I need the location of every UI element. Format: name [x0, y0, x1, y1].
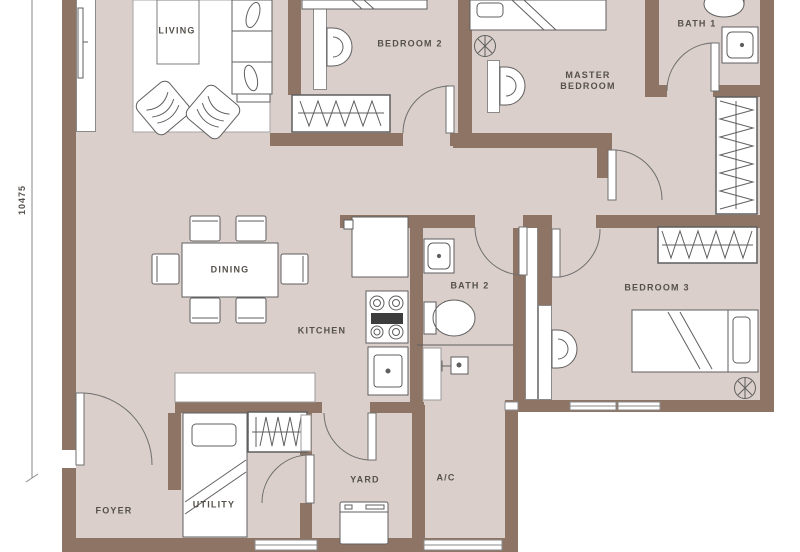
bath2-ledge — [423, 348, 441, 400]
sofa — [232, 0, 272, 102]
refrigerator-icon — [344, 217, 408, 277]
washing-machine-icon — [340, 502, 388, 544]
wardrobe-hangers-icon — [716, 97, 757, 214]
bedroom2-bed — [302, 0, 427, 9]
tv-icon — [78, 8, 88, 78]
toilet-icon — [704, 0, 744, 17]
wall-ac-unit-icon — [327, 28, 352, 66]
dining-chair — [281, 254, 308, 284]
yard-door-frame — [301, 415, 311, 451]
stove-icon — [366, 291, 408, 343]
wardrobe-hangers-icon — [658, 227, 757, 263]
wall-ac-unit-icon — [500, 67, 525, 105]
ceiling-fan-icon — [475, 36, 496, 57]
room-label-ac: A/C — [436, 473, 455, 484]
room-label-living: LIVING — [158, 26, 195, 37]
room-label-bath2: BATH 2 — [450, 281, 489, 292]
dining-chair — [190, 298, 220, 323]
room-label-kitchen: KITCHEN — [298, 326, 346, 337]
dining-chair — [236, 216, 266, 241]
wardrobe-hangers-icon — [292, 95, 390, 132]
bedroom3-bed — [632, 310, 758, 372]
dimension-line-left — [26, 0, 38, 482]
dining-chair — [152, 254, 179, 284]
room-label-yard: YARD — [350, 475, 379, 486]
dining-chair — [190, 216, 220, 241]
wall-ac-unit-icon — [552, 330, 577, 368]
room-label-bath1: BATH 1 — [677, 19, 716, 30]
wardrobe-hangers-icon — [248, 412, 307, 452]
dimension-label-left: 10475 — [17, 185, 27, 215]
room-label-bedroom3: BEDROOM 3 — [624, 283, 689, 294]
floor-plan: LIVING BEDROOM 2 MASTER BEDROOM BATH 1 D… — [0, 0, 800, 552]
utility-counter — [175, 373, 315, 402]
room-label-dining: DINING — [211, 265, 250, 276]
room-label-master-line1: MASTER — [560, 70, 615, 81]
ceiling-fan-icon — [735, 378, 756, 399]
room-label-foyer: FOYER — [95, 506, 132, 517]
room-label-master-line2: BEDROOM — [560, 81, 615, 92]
room-label-bedroom2: BEDROOM 2 — [377, 39, 442, 50]
room-label-master: MASTER BEDROOM — [560, 70, 615, 92]
fixtures-layer — [0, 0, 800, 552]
wash-basin-icon — [424, 239, 454, 273]
dining-chair — [236, 298, 266, 323]
utility-bed — [183, 413, 247, 537]
kitchen-sink-icon — [368, 347, 408, 395]
wash-basin-icon — [722, 27, 758, 63]
toilet-icon — [424, 300, 475, 336]
window — [255, 402, 660, 550]
master-bed — [470, 0, 606, 30]
room-label-utility: UTILITY — [193, 500, 235, 511]
